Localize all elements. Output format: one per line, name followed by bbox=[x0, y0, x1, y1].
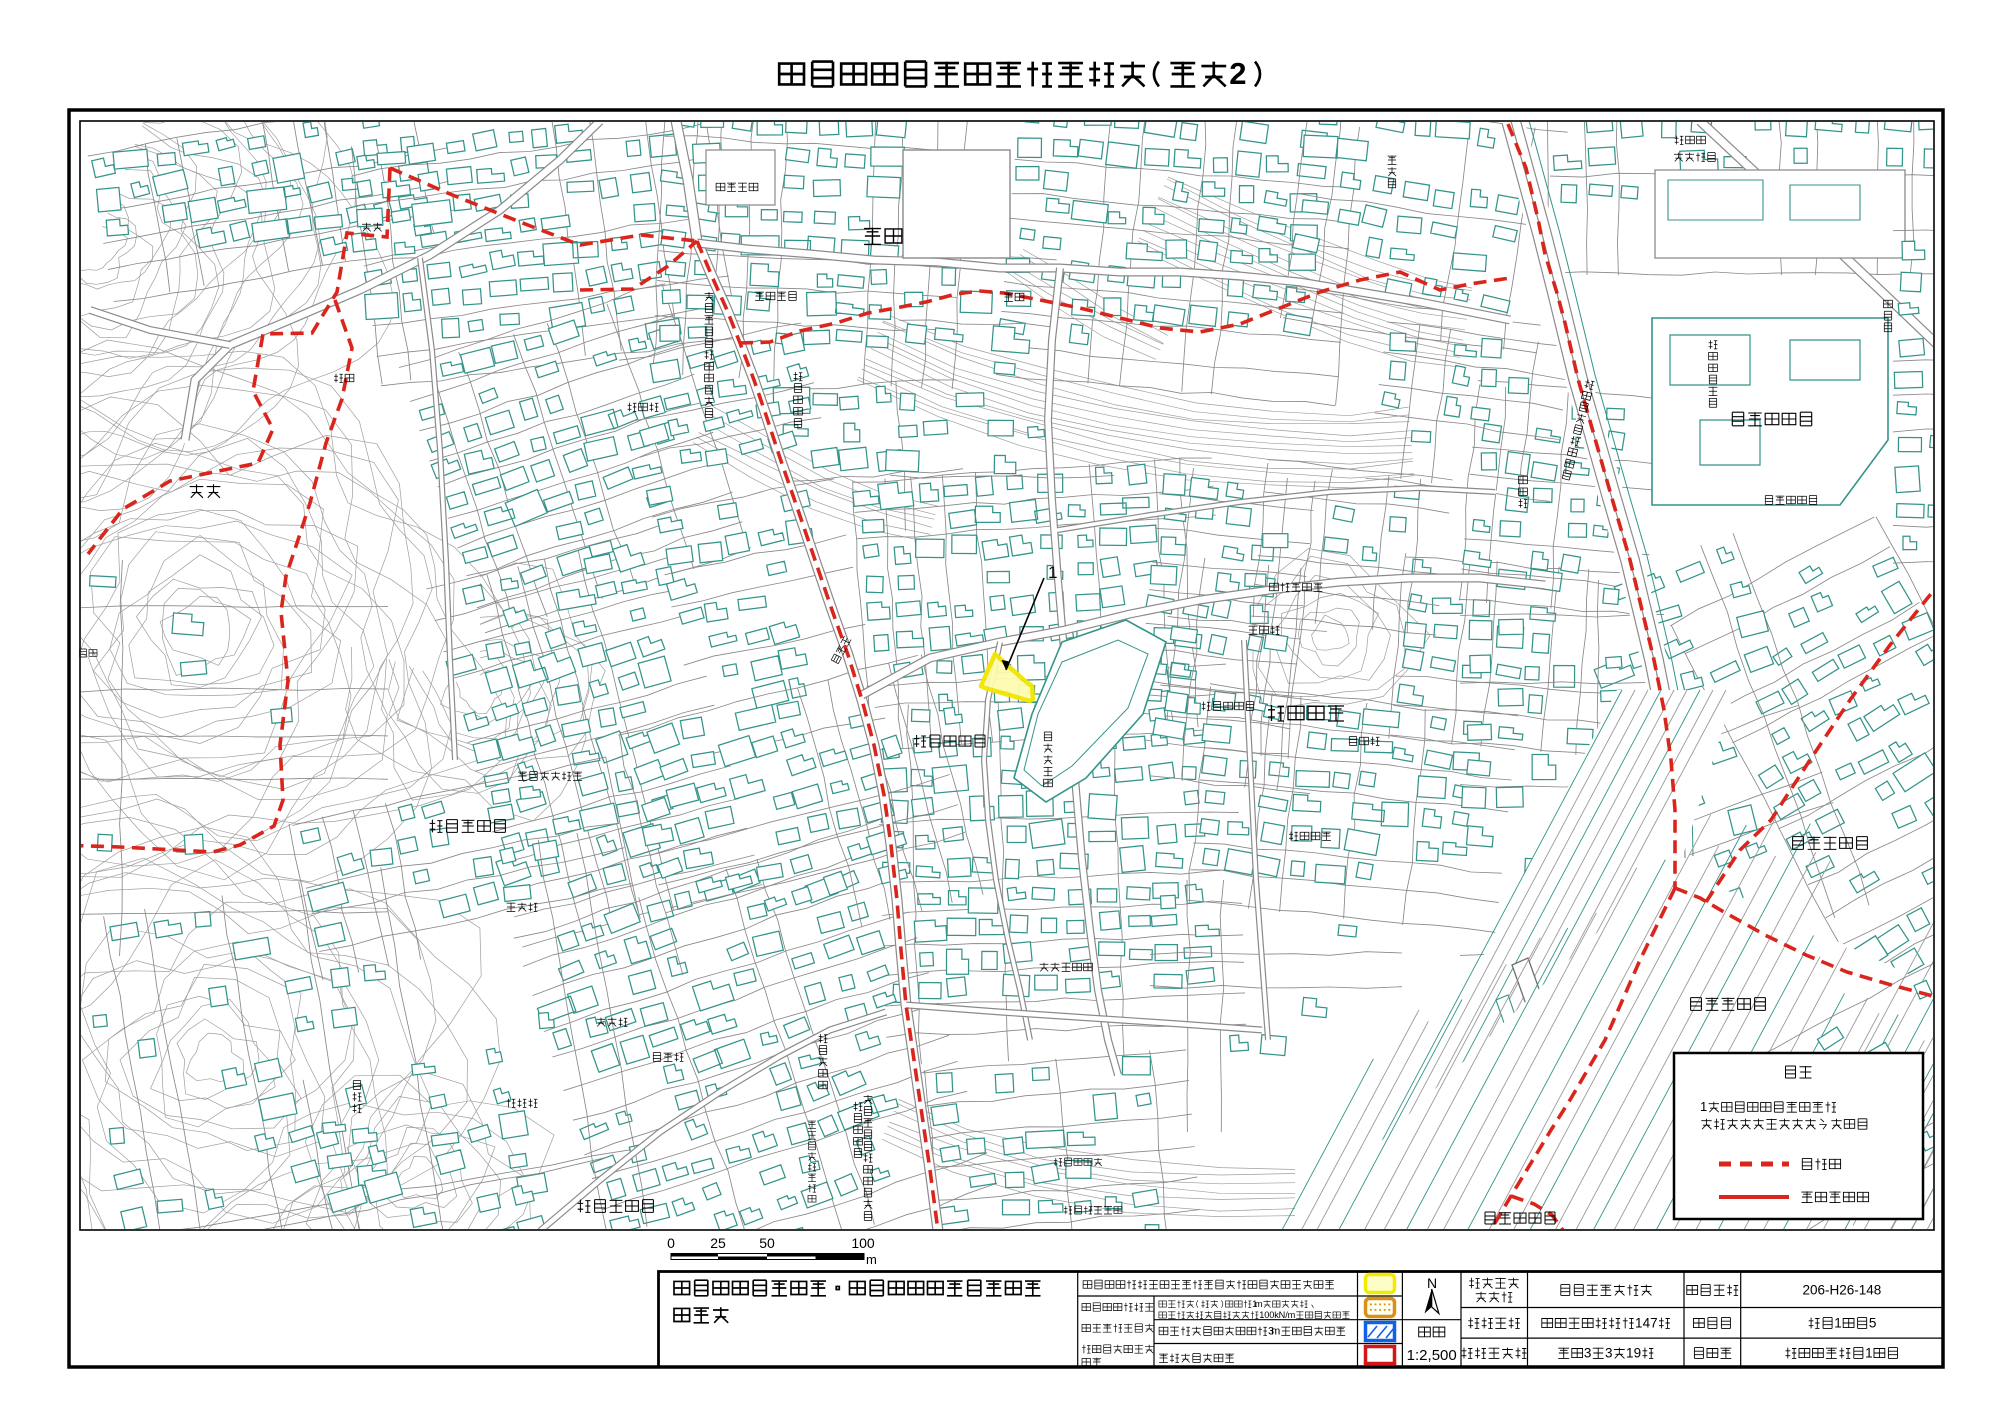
svg-text:3: 3 bbox=[1605, 1345, 1613, 1360]
svg-text:25: 25 bbox=[710, 1235, 726, 1251]
svg-text:1: 1 bbox=[1700, 1099, 1707, 1114]
svg-text:1: 1 bbox=[1834, 1315, 1842, 1330]
svg-text:206-H26-148: 206-H26-148 bbox=[1802, 1283, 1881, 1298]
svg-text:100kN/m: 100kN/m bbox=[1259, 1310, 1295, 1320]
svg-text:3: 3 bbox=[1584, 1345, 1592, 1360]
svg-text:3m: 3m bbox=[1268, 1326, 1280, 1338]
svg-text:100: 100 bbox=[851, 1235, 875, 1251]
svg-text:1: 1 bbox=[1865, 1345, 1873, 1360]
svg-text:1: 1 bbox=[1048, 563, 1057, 582]
svg-text:19: 19 bbox=[1626, 1345, 1641, 1360]
svg-text:m: m bbox=[866, 1252, 877, 1267]
svg-text:N: N bbox=[1427, 1275, 1437, 1291]
svg-text:0: 0 bbox=[667, 1235, 675, 1251]
svg-text:2: 2 bbox=[1229, 56, 1246, 91]
svg-text:147: 147 bbox=[1635, 1315, 1658, 1330]
svg-text:1:2,500: 1:2,500 bbox=[1407, 1347, 1457, 1364]
svg-text:50: 50 bbox=[759, 1235, 775, 1251]
svg-text:5: 5 bbox=[1869, 1315, 1877, 1330]
svg-text:1m: 1m bbox=[1252, 1299, 1263, 1309]
